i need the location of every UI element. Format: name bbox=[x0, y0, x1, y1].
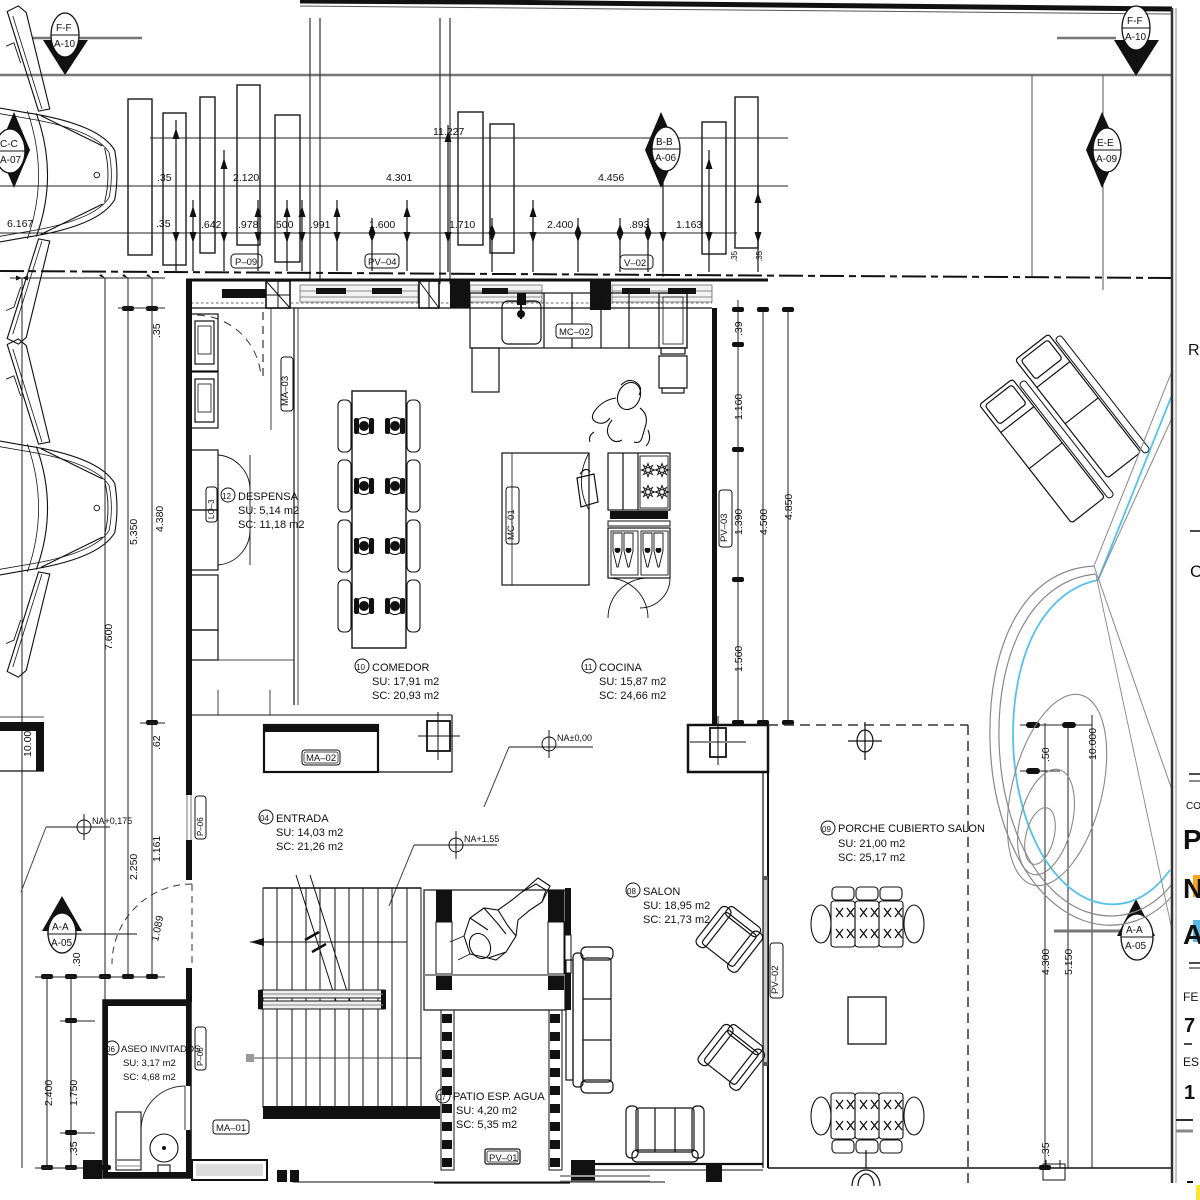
svg-text:PV–02: PV–02 bbox=[770, 965, 781, 994]
svg-text:A-A: A-A bbox=[1126, 925, 1143, 936]
svg-text:10: 10 bbox=[356, 663, 365, 672]
svg-text:1.390: 1.390 bbox=[733, 509, 745, 535]
svg-text:11.227: 11.227 bbox=[433, 126, 464, 138]
svg-text:A-06: A-06 bbox=[655, 153, 677, 164]
svg-text:.39: .39 bbox=[733, 321, 745, 336]
svg-text:07: 07 bbox=[437, 1093, 446, 1102]
svg-text:04: 04 bbox=[260, 814, 269, 823]
svg-text:SC: 24,66 m2: SC: 24,66 m2 bbox=[599, 690, 666, 702]
svg-text:A-09: A-09 bbox=[1096, 154, 1118, 165]
svg-text:2.120: 2.120 bbox=[233, 172, 259, 184]
svg-text:11: 11 bbox=[584, 663, 593, 672]
svg-text:A-05: A-05 bbox=[1125, 941, 1147, 952]
svg-text:PATIO ESP. AGUA: PATIO ESP. AGUA bbox=[453, 1091, 545, 1103]
svg-text:1.710: 1.710 bbox=[449, 219, 475, 231]
svg-text:NA±0,00: NA±0,00 bbox=[557, 733, 592, 743]
svg-text:09: 09 bbox=[822, 825, 831, 834]
svg-text:4.850: 4.850 bbox=[783, 494, 795, 520]
svg-text:RO: RO bbox=[1188, 342, 1200, 359]
svg-text:FE: FE bbox=[1183, 990, 1198, 1004]
svg-text:5.150: 5.150 bbox=[1063, 949, 1075, 975]
svg-text:.500: .500 bbox=[273, 219, 294, 231]
svg-text:NA+0,175: NA+0,175 bbox=[92, 816, 132, 826]
svg-text:.35: .35 bbox=[151, 323, 163, 338]
svg-text:A: A bbox=[1183, 919, 1200, 950]
svg-text:SC: 21,73 m2: SC: 21,73 m2 bbox=[643, 914, 710, 926]
svg-text:F-F: F-F bbox=[1127, 16, 1143, 27]
svg-text:06: 06 bbox=[106, 1045, 115, 1054]
svg-text:A-07: A-07 bbox=[0, 155, 22, 166]
svg-text:MC–01: MC–01 bbox=[506, 509, 517, 540]
svg-text:B-B: B-B bbox=[656, 137, 673, 148]
svg-text:NA+1,55: NA+1,55 bbox=[464, 834, 499, 844]
svg-text:12: 12 bbox=[222, 492, 231, 501]
svg-text:10.000: 10.000 bbox=[1087, 728, 1099, 760]
svg-text:1.600: 1.600 bbox=[369, 219, 395, 231]
svg-text:A-10: A-10 bbox=[54, 39, 76, 50]
svg-text:MA–02: MA–02 bbox=[306, 753, 336, 764]
svg-text:SC: 20,93 m2: SC: 20,93 m2 bbox=[372, 690, 439, 702]
svg-text:2.400: 2.400 bbox=[547, 219, 573, 231]
svg-text:1.161: 1.161 bbox=[151, 836, 163, 862]
svg-text:E-E: E-E bbox=[1097, 138, 1114, 149]
svg-text:A-05: A-05 bbox=[51, 938, 73, 949]
svg-text:.35: .35 bbox=[157, 172, 172, 184]
svg-text:PV–04: PV–04 bbox=[368, 257, 397, 268]
svg-text:MA–03: MA–03 bbox=[280, 376, 291, 406]
svg-text:.35: .35 bbox=[730, 250, 739, 262]
svg-text:SALON: SALON bbox=[643, 886, 680, 898]
svg-text:A-10: A-10 bbox=[1125, 32, 1147, 43]
svg-text:SC: 25,17 m2: SC: 25,17 m2 bbox=[838, 852, 905, 864]
svg-text:1: 1 bbox=[1184, 1082, 1195, 1104]
svg-text:2.400: 2.400 bbox=[43, 1080, 55, 1106]
svg-text:4.301: 4.301 bbox=[386, 172, 412, 184]
svg-text:.50: .50 bbox=[1040, 747, 1052, 762]
svg-text:.35: .35 bbox=[156, 218, 171, 230]
svg-text:.30: .30 bbox=[71, 952, 83, 967]
svg-text:MC–02: MC–02 bbox=[559, 327, 590, 338]
svg-text:.642: .642 bbox=[201, 219, 222, 231]
svg-text:5.350: 5.350 bbox=[128, 519, 140, 545]
svg-text:SU: 14,03 m2: SU: 14,03 m2 bbox=[276, 827, 343, 839]
svg-text:SU: 4,20 m2: SU: 4,20 m2 bbox=[456, 1105, 517, 1117]
svg-text:ENTRADA: ENTRADA bbox=[276, 813, 329, 825]
svg-text:A-A: A-A bbox=[52, 922, 69, 933]
svg-text:08: 08 bbox=[627, 887, 636, 896]
svg-text:CO: CO bbox=[1186, 801, 1200, 812]
svg-text:.35: .35 bbox=[1040, 1142, 1052, 1157]
svg-text:PV–01: PV–01 bbox=[489, 1153, 518, 1164]
svg-text:P–09: P–09 bbox=[235, 257, 257, 268]
svg-text:C: C bbox=[1190, 562, 1200, 581]
svg-text:.62: .62 bbox=[151, 735, 163, 750]
svg-text:1.160: 1.160 bbox=[733, 394, 745, 420]
svg-text:F-F: F-F bbox=[56, 23, 72, 34]
svg-text:ES: ES bbox=[1183, 1055, 1199, 1069]
svg-text:SC: 5,35 m2: SC: 5,35 m2 bbox=[456, 1119, 517, 1131]
svg-text:P: P bbox=[1183, 824, 1200, 855]
svg-text:1.560: 1.560 bbox=[733, 646, 745, 672]
svg-text:SU: 3,17 m2: SU: 3,17 m2 bbox=[123, 1058, 176, 1069]
svg-text:PV–03: PV–03 bbox=[719, 513, 730, 542]
svg-text:P–06: P–06 bbox=[196, 817, 205, 836]
svg-text:6.167: 6.167 bbox=[7, 218, 33, 230]
svg-text:N: N bbox=[1183, 873, 1200, 904]
svg-text:SC: 4,68 m2: SC: 4,68 m2 bbox=[123, 1072, 176, 1083]
svg-text:4.456: 4.456 bbox=[598, 172, 624, 184]
svg-text:7: 7 bbox=[1184, 1015, 1195, 1037]
svg-text:COMEDOR: COMEDOR bbox=[372, 662, 430, 674]
svg-text:SU: 18,95 m2: SU: 18,95 m2 bbox=[643, 900, 710, 912]
svg-text:.893: .893 bbox=[629, 219, 650, 231]
svg-text:V–02: V–02 bbox=[624, 258, 646, 269]
svg-text:2.250: 2.250 bbox=[128, 854, 140, 880]
svg-text:MA–01: MA–01 bbox=[216, 1123, 246, 1134]
svg-text:.35: .35 bbox=[755, 250, 764, 262]
svg-text:.978: .978 bbox=[238, 219, 259, 231]
svg-text:SU: 5,14 m2: SU: 5,14 m2 bbox=[238, 505, 299, 517]
svg-text:SC: 21,26 m2: SC: 21,26 m2 bbox=[276, 841, 343, 853]
svg-text:C-C: C-C bbox=[0, 139, 18, 150]
svg-text:.991: .991 bbox=[310, 219, 331, 231]
svg-text:DESPENSA: DESPENSA bbox=[238, 491, 299, 503]
svg-text:4.500: 4.500 bbox=[758, 509, 770, 535]
svg-text:SU: 17,91 m2: SU: 17,91 m2 bbox=[372, 676, 439, 688]
svg-text:COCINA: COCINA bbox=[599, 662, 642, 674]
svg-text:SC: 11,18 m2: SC: 11,18 m2 bbox=[238, 519, 304, 531]
svg-text:ASEO INVITADOS: ASEO INVITADOS bbox=[121, 1044, 201, 1055]
svg-text:LO–3: LO–3 bbox=[207, 499, 216, 519]
svg-text:SU: 21,00 m2: SU: 21,00 m2 bbox=[838, 838, 905, 850]
svg-text:7.600: 7.600 bbox=[103, 624, 115, 650]
svg-text:1.750: 1.750 bbox=[68, 1080, 80, 1106]
svg-text:4.380: 4.380 bbox=[154, 506, 166, 532]
svg-text:PORCHE CUBIERTO SALON: PORCHE CUBIERTO SALON bbox=[838, 823, 985, 835]
svg-text:.35: .35 bbox=[68, 1141, 80, 1156]
svg-text:4.300: 4.300 bbox=[1040, 949, 1052, 975]
svg-text:SU: 15,87 m2: SU: 15,87 m2 bbox=[599, 676, 666, 688]
svg-text:1.163: 1.163 bbox=[676, 219, 702, 231]
